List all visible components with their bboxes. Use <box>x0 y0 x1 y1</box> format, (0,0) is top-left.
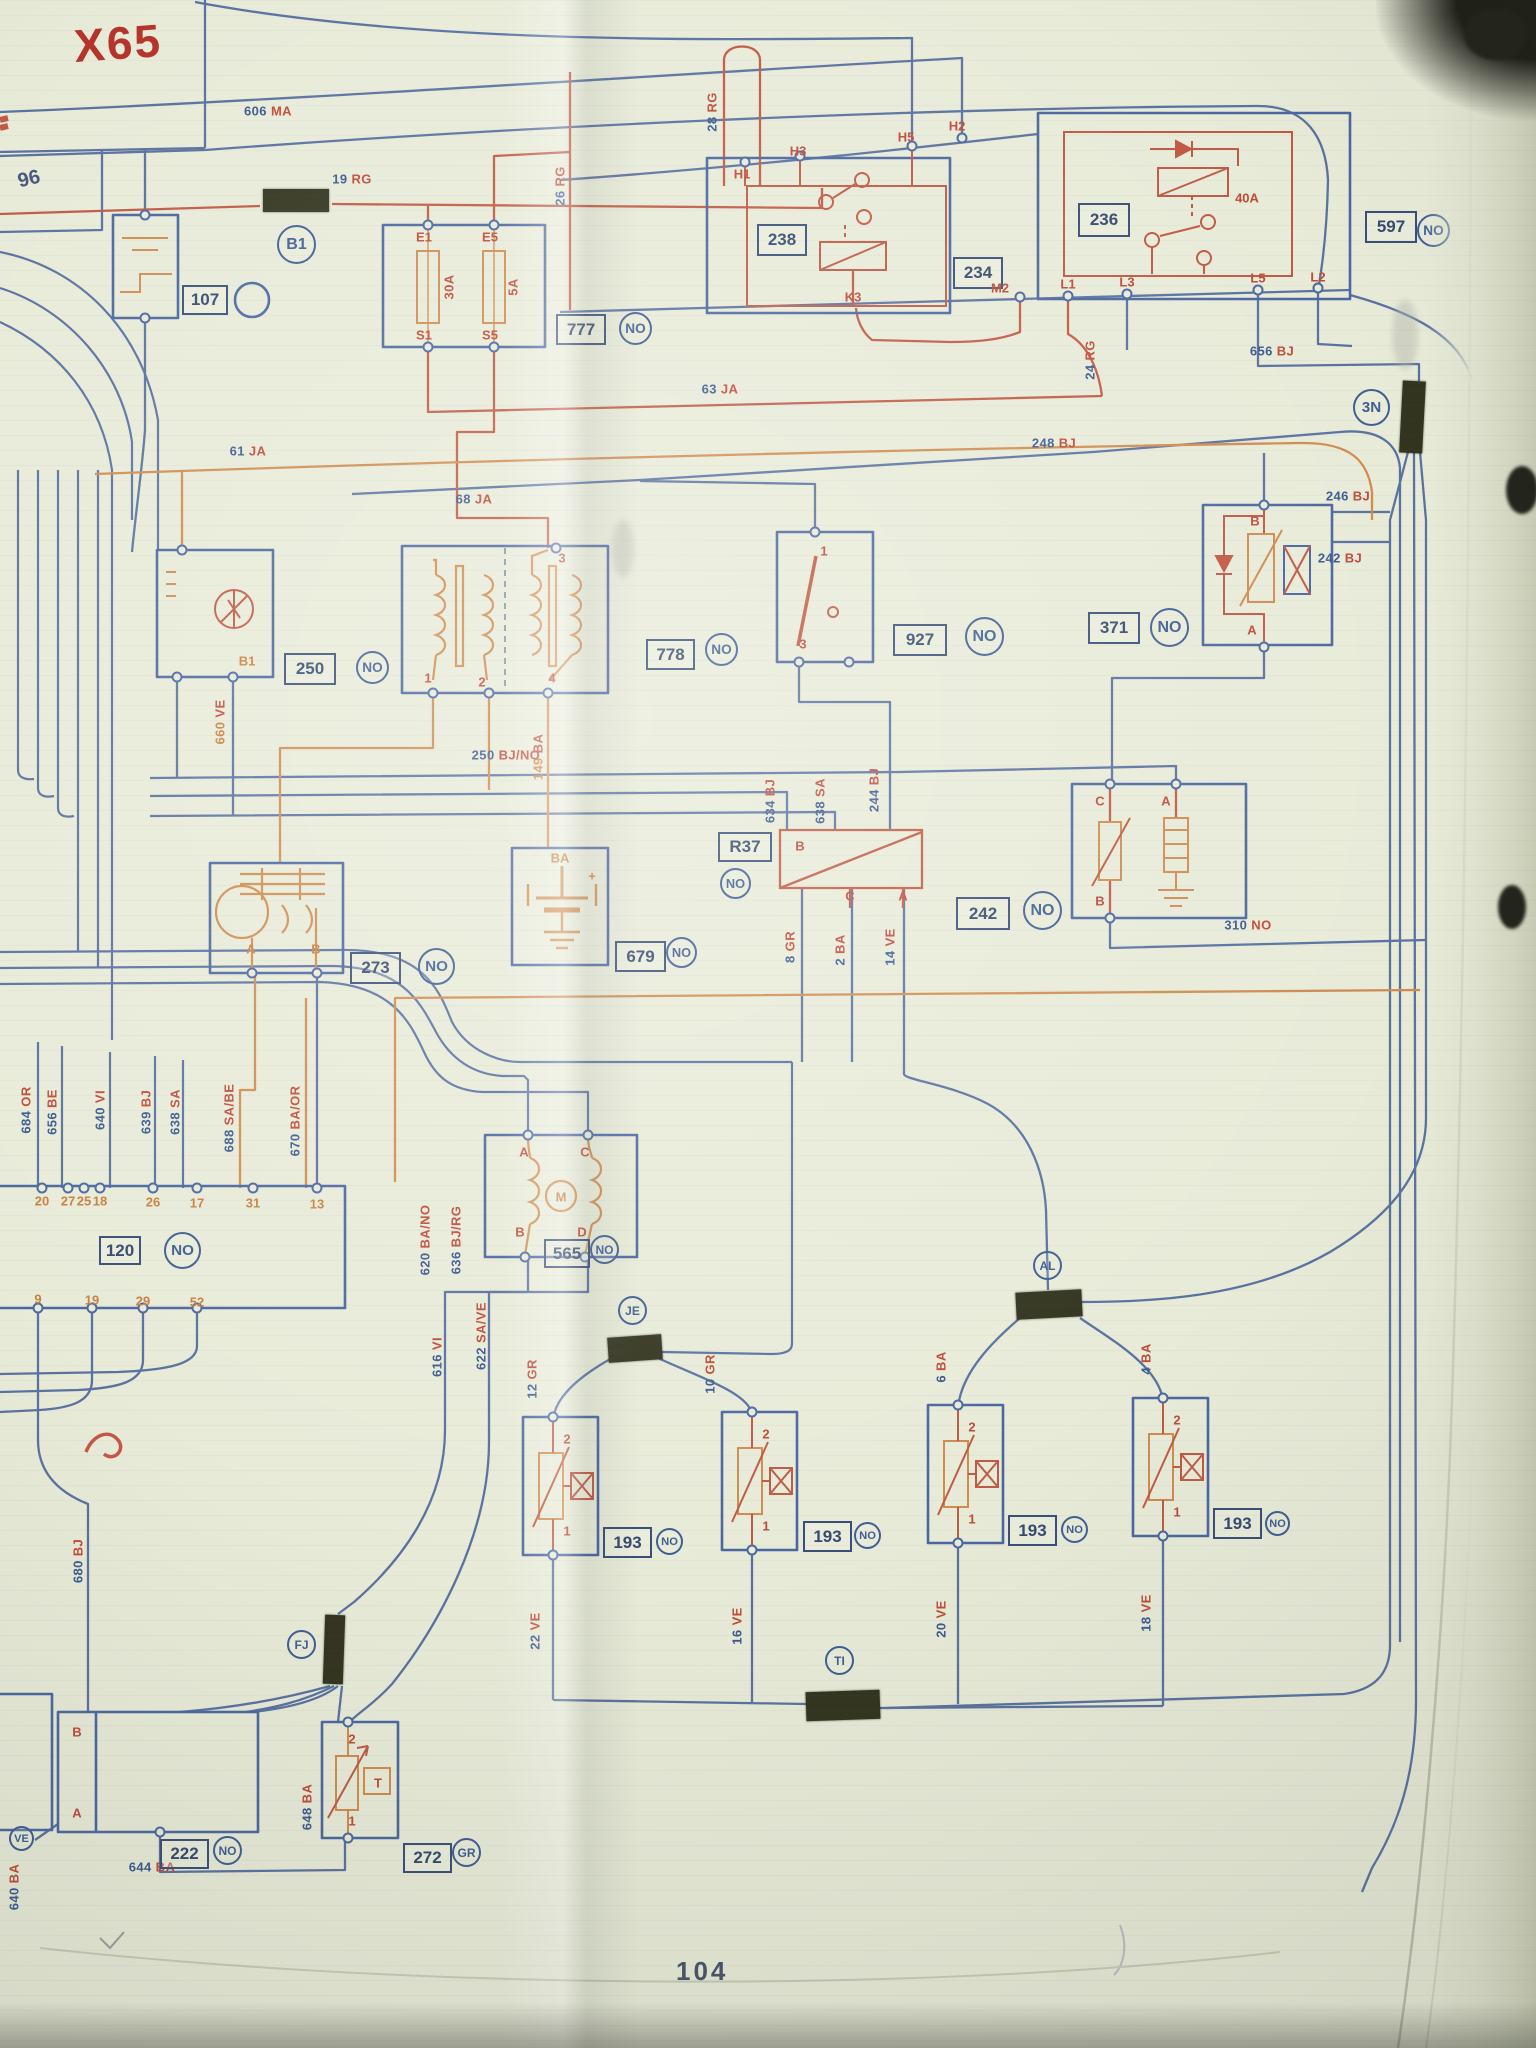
circle-tag-no-10: NO <box>164 1232 201 1269</box>
circle-tag-no-7: NO <box>418 948 455 985</box>
component-tag-193-21: 193 <box>1213 1508 1262 1539</box>
corner-reference: 96 <box>16 166 43 194</box>
circle-tag-ti-22: TI <box>825 1646 854 1675</box>
circle-tag-no-16: NO <box>213 1836 242 1865</box>
terminal-1-44: 1 <box>968 1512 975 1527</box>
wire-label-638-sa: 638 SA <box>168 1089 183 1135</box>
component-tag-250-6: 250 <box>284 653 336 685</box>
circle-tag-al-21: AL <box>1033 1251 1062 1280</box>
circle-tag-fj-23: FJ <box>287 1630 316 1659</box>
terminal-c-32: C <box>845 889 854 904</box>
component-tag-236-1: 236 <box>1078 203 1130 237</box>
wire-label-688-sa-be: 688 SA/BE <box>222 1084 237 1153</box>
wire-label-640-vi: 640 VI <box>93 1090 108 1130</box>
wire-label-5a: 5A <box>506 278 521 295</box>
wire-label-622-sa-ve: 622 SA/VE <box>474 1302 489 1370</box>
component-tag-273-11: 273 <box>350 952 401 984</box>
circle-tag-no-9: NO <box>590 1235 619 1264</box>
terminal-k3-8: K3 <box>845 290 862 305</box>
wire-label-20-ve: 20 VE <box>934 1600 949 1637</box>
wire-label-310-no: 310 NO <box>1224 918 1271 933</box>
terminal-l2-13: L2 <box>1310 270 1325 285</box>
terminal-29-62: 29 <box>136 1294 150 1309</box>
circle-tag-je-20: JE <box>618 1296 647 1325</box>
terminal-9-60: 9 <box>34 1292 41 1307</box>
wire-label-14-ve: 14 VE <box>883 928 898 965</box>
wiring-diagram-page: X65 96 104 606 MA19 RG26 RG28 RG63 JA24 … <box>0 0 1536 2048</box>
terminal-4-18: 4 <box>548 671 555 686</box>
terminal-1-40: 1 <box>563 1524 570 1539</box>
wire-label-24-rg: 24 RG <box>1083 340 1098 380</box>
inline-connector-0 <box>263 189 329 212</box>
wire-label-10-gr: 10 GR <box>703 1354 718 1394</box>
terminal-2-39: 2 <box>563 1432 570 1447</box>
terminal-b1-28: B1 <box>239 654 256 669</box>
terminal-h5-6: H5 <box>898 130 915 145</box>
terminal-s5-3: S5 <box>482 328 498 343</box>
circle-tag-no-13: NO <box>854 1522 881 1549</box>
terminal-h1-4: H1 <box>734 167 751 182</box>
terminal-17-57: 17 <box>190 1196 204 1211</box>
binder-shadow <box>1464 8 1528 60</box>
terminal-13-59: 13 <box>310 1197 324 1212</box>
component-tag-597-4: 597 <box>1365 211 1417 243</box>
component-tag-565-13: 565 <box>544 1239 590 1268</box>
wire-label-250-bj-no: 250 BJ/NO <box>472 748 541 763</box>
component-tag-193-20: 193 <box>1008 1515 1057 1546</box>
terminal-19-61: 19 <box>85 1293 99 1308</box>
wire-label-684-or: 684 OR <box>19 1086 34 1133</box>
wire-label-18-ve: 18 VE <box>1139 1594 1154 1631</box>
component-tag-107-5: 107 <box>182 285 228 315</box>
wire-label-12-gr: 12 GR <box>525 1359 540 1399</box>
vehicle-code: X65 <box>72 13 163 73</box>
labels-layer: X65 96 104 606 MA19 RG26 RG28 RG63 JA24 … <box>0 0 1536 2048</box>
terminal-25-54: 25 <box>77 1194 91 1209</box>
circle-tag-no-8: NO <box>666 937 697 968</box>
circle-tag-no-1: NO <box>1417 214 1450 247</box>
terminal-3-15: 3 <box>558 551 565 566</box>
terminal-26-56: 26 <box>146 1195 160 1210</box>
wire-label-61-ja: 61 JA <box>230 444 267 459</box>
terminal-e1-0: E1 <box>416 230 432 245</box>
circle-tag-no-4: NO <box>965 617 1004 656</box>
inline-connector-2 <box>607 1334 663 1363</box>
terminal-b-21: B <box>1250 514 1259 529</box>
terminal-20-52: 20 <box>35 1194 49 1209</box>
circle-tag-no-3: NO <box>705 633 738 666</box>
terminal-d-37: D <box>577 1225 586 1240</box>
terminal--30: + <box>588 869 596 884</box>
terminal-t-49: T <box>374 1776 382 1791</box>
terminal-b-50: B <box>72 1725 81 1740</box>
wire-label-63-ja: 63 JA <box>702 382 739 397</box>
terminal-l5-12: L5 <box>1250 271 1265 286</box>
terminal-l3-11: L3 <box>1119 275 1134 290</box>
terminal-a-51: A <box>72 1806 81 1821</box>
binder-shadow <box>1498 885 1526 929</box>
component-tag-272-17: 272 <box>403 1843 452 1873</box>
terminal-1-48: 1 <box>348 1814 355 1829</box>
terminal-52-63: 52 <box>190 1295 204 1310</box>
circle-tag-no-0: NO <box>619 312 652 345</box>
component-tag-778-7: 778 <box>646 639 695 670</box>
binder-shadow <box>1506 466 1536 514</box>
terminal-2-43: 2 <box>968 1420 975 1435</box>
inline-connector-4 <box>806 1690 881 1722</box>
component-tag-777-3: 777 <box>556 314 606 345</box>
wire-label-648-ba: 648 BA <box>300 1784 315 1830</box>
wire-label-656-be: 656 BE <box>45 1089 60 1135</box>
terminal-a-24: A <box>1161 794 1170 809</box>
circle-tag-no-11: NO <box>720 868 751 899</box>
page-number: 104 <box>676 1956 728 1987</box>
terminal-a-33: A <box>898 889 907 904</box>
circle-tag-3n-19: 3N <box>1353 389 1390 426</box>
terminal-ba-29: BA <box>551 851 570 866</box>
wire-label-670-ba-or: 670 BA/OR <box>288 1086 303 1157</box>
terminal-1-46: 1 <box>1173 1505 1180 1520</box>
terminal-2-45: 2 <box>1173 1413 1180 1428</box>
wire-label-8-gr: 8 GR <box>783 931 798 963</box>
wire-label-639-bj: 639 BJ <box>139 1090 154 1134</box>
component-tag-222-16: 222 <box>160 1839 209 1869</box>
wire-label-16-ve: 16 VE <box>730 1607 745 1644</box>
wire-label-28-rg: 28 RG <box>705 92 720 132</box>
inline-connector-3 <box>1015 1289 1082 1319</box>
terminal-s1-2: S1 <box>416 328 432 343</box>
wire-label-244-bj: 244 BJ <box>867 768 882 812</box>
wire-label-680-bj: 680 BJ <box>71 1539 86 1583</box>
terminal-b-27: B <box>311 942 320 957</box>
wire-label-30a: 30A <box>442 274 457 299</box>
terminal-b-31: B <box>795 839 804 854</box>
terminal-1-16: 1 <box>424 671 431 686</box>
component-tag-679-12: 679 <box>615 941 666 972</box>
circle-tag-no-2: NO <box>356 651 389 684</box>
component-tag-927-8: 927 <box>893 624 947 656</box>
circle-tag-no-14: NO <box>1061 1516 1088 1543</box>
wire-label-26-rg: 26 RG <box>553 166 568 206</box>
wire-label-636-bj-rg: 636 BJ/RG <box>449 1206 464 1275</box>
circle-tag-ve-24: VE <box>9 1826 34 1851</box>
circle-tag-b1-18: B1 <box>277 225 316 264</box>
wire-label-634-bj: 634 BJ <box>763 779 778 823</box>
terminal-2-17: 2 <box>478 675 485 690</box>
terminal-b-25: B <box>1095 894 1104 909</box>
component-tag-193-19: 193 <box>803 1521 852 1552</box>
terminal-18-55: 18 <box>93 1194 107 1209</box>
wire-label-4-ba: 4 BA <box>1139 1343 1154 1374</box>
circle-tag-no-6: NO <box>1023 891 1062 930</box>
terminal-a-26: A <box>246 942 255 957</box>
component-tag-371-9: 371 <box>1088 612 1140 644</box>
circle-tag-no-12: NO <box>656 1528 683 1555</box>
component-tag-120-14: 120 <box>99 1236 141 1265</box>
terminal-2-41: 2 <box>762 1427 769 1442</box>
terminal-c-35: C <box>580 1145 589 1160</box>
wire-label-606-ma: 606 MA <box>244 104 292 119</box>
terminal-3-20: 3 <box>799 637 806 652</box>
wire-label-640-ba: 640 BA <box>7 1864 22 1910</box>
terminal-40a-14: 40A <box>1235 191 1259 206</box>
terminal-1-42: 1 <box>762 1519 769 1534</box>
wire-label-660-ve: 660 VE <box>213 699 228 744</box>
wire-label-620-ba-no: 620 BA/NO <box>418 1205 433 1276</box>
component-tag-242-10: 242 <box>956 897 1010 930</box>
circle-tag-gr-17: GR <box>452 1838 481 1867</box>
wire-label-656-bj: 656 BJ <box>1250 344 1294 359</box>
terminal-c-23: C <box>1095 794 1104 809</box>
wire-label-2-ba: 2 BA <box>833 934 848 965</box>
wire-label-638-sa: 638 SA <box>813 778 828 824</box>
terminal-b-36: B <box>515 1225 524 1240</box>
wire-label-19-rg: 19 RG <box>332 172 372 187</box>
terminal-31-58: 31 <box>246 1196 260 1211</box>
terminal-a-34: A <box>519 1145 528 1160</box>
terminal-a-22: A <box>1247 623 1256 638</box>
inline-connector-5 <box>323 1615 345 1685</box>
terminal-e5-1: E5 <box>482 230 498 245</box>
wire-label-616-vi: 616 VI <box>430 1337 445 1377</box>
terminal-m-38: M <box>556 1190 567 1205</box>
terminal-2-47: 2 <box>348 1732 355 1747</box>
wire-label-246-bj: 246 BJ <box>1326 489 1370 504</box>
wire-label-68-ja: 68 JA <box>456 492 493 507</box>
terminal-h3-5: H3 <box>790 144 807 159</box>
component-tag-238-0: 238 <box>757 224 807 256</box>
circle-tag-no-15: NO <box>1265 1511 1290 1536</box>
terminal-h2-7: H2 <box>949 119 966 134</box>
circle-tag-no-5: NO <box>1150 608 1189 647</box>
component-tag-193-18: 193 <box>603 1527 652 1558</box>
wire-label-242-bj: 242 BJ <box>1318 551 1362 566</box>
component-tag-r37-15: R37 <box>718 832 772 862</box>
inline-connector-1 <box>1399 380 1426 453</box>
terminal-1-19: 1 <box>820 544 827 559</box>
wire-label-248-bj: 248 BJ <box>1032 436 1076 451</box>
terminal-m2-9: M2 <box>991 281 1009 296</box>
wire-label-22-ve: 22 VE <box>528 1612 543 1649</box>
wire-label-6-ba: 6 BA <box>934 1351 949 1382</box>
terminal-l1-10: L1 <box>1060 277 1075 292</box>
terminal-27-53: 27 <box>61 1194 75 1209</box>
